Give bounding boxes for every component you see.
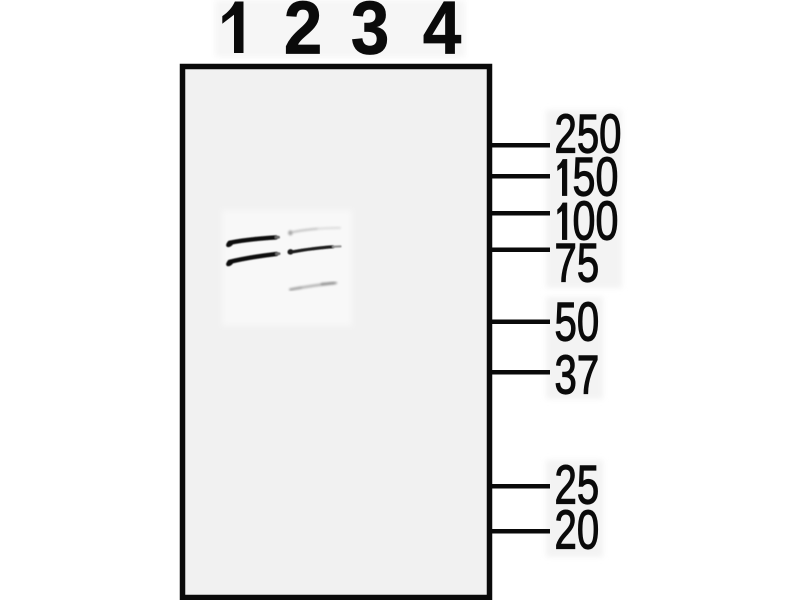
svg-text:3: 3 bbox=[351, 0, 389, 70]
svg-text:20: 20 bbox=[555, 499, 600, 561]
svg-text:4: 4 bbox=[423, 0, 461, 70]
svg-text:75: 75 bbox=[555, 232, 600, 294]
svg-text:2: 2 bbox=[284, 0, 322, 70]
svg-text:37: 37 bbox=[555, 344, 600, 406]
